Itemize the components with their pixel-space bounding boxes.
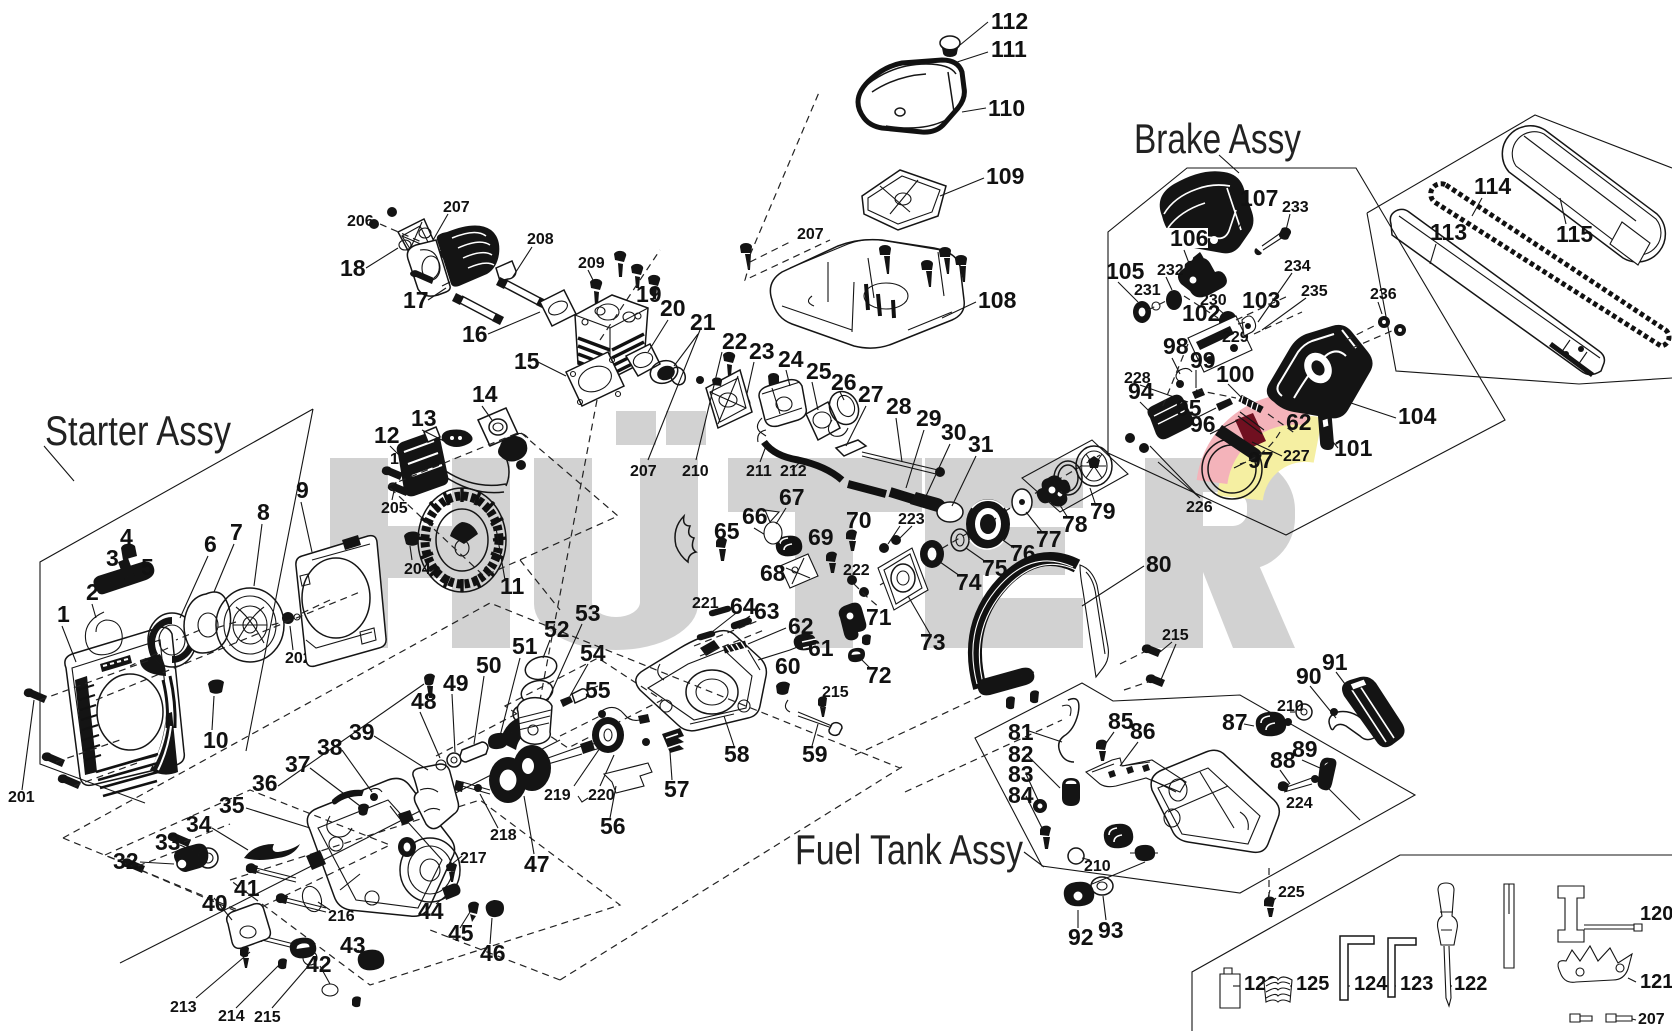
svg-text:60: 60 xyxy=(775,653,801,679)
svg-text:32: 32 xyxy=(113,848,139,874)
svg-text:1: 1 xyxy=(57,601,70,627)
svg-text:44: 44 xyxy=(418,898,444,924)
svg-text:13: 13 xyxy=(411,405,437,431)
svg-text:79: 79 xyxy=(1090,498,1116,524)
svg-text:51: 51 xyxy=(512,633,538,659)
svg-text:120: 120 xyxy=(1640,903,1672,925)
svg-text:14: 14 xyxy=(472,381,498,407)
svg-text:70: 70 xyxy=(846,507,872,533)
svg-text:204: 204 xyxy=(404,561,431,578)
svg-text:24: 24 xyxy=(778,346,804,372)
svg-text:218: 218 xyxy=(490,827,517,844)
svg-text:11: 11 xyxy=(500,573,525,599)
svg-text:23: 23 xyxy=(749,338,775,364)
svg-text:211: 211 xyxy=(746,463,772,480)
svg-text:72: 72 xyxy=(866,662,892,688)
svg-text:67: 67 xyxy=(779,484,805,510)
svg-text:73: 73 xyxy=(920,629,946,655)
svg-text:37: 37 xyxy=(285,751,311,777)
svg-text:100: 100 xyxy=(1216,361,1254,387)
svg-text:107: 107 xyxy=(1240,185,1278,211)
svg-text:208: 208 xyxy=(527,231,554,248)
svg-text:56: 56 xyxy=(600,813,626,839)
svg-text:109: 109 xyxy=(986,163,1024,189)
svg-text:219: 219 xyxy=(544,787,571,804)
svg-text:215: 215 xyxy=(1162,627,1189,644)
svg-text:97: 97 xyxy=(1248,447,1274,473)
svg-text:123: 123 xyxy=(1400,973,1433,995)
svg-text:90: 90 xyxy=(1296,663,1322,689)
svg-text:Brake Assy: Brake Assy xyxy=(1134,115,1301,162)
svg-text:7: 7 xyxy=(230,519,243,545)
svg-text:226: 226 xyxy=(1186,499,1213,516)
svg-text:210: 210 xyxy=(1084,858,1111,875)
svg-text:210: 210 xyxy=(682,463,709,480)
svg-text:6: 6 xyxy=(204,531,217,557)
svg-text:93: 93 xyxy=(1098,917,1124,943)
svg-text:57: 57 xyxy=(664,776,690,802)
svg-text:80: 80 xyxy=(1146,551,1172,577)
svg-text:35: 35 xyxy=(219,792,245,818)
svg-text:207: 207 xyxy=(1638,1011,1665,1028)
svg-text:207: 207 xyxy=(443,199,470,216)
svg-text:28: 28 xyxy=(886,393,912,419)
svg-text:45: 45 xyxy=(448,920,474,946)
svg-text:234: 234 xyxy=(1284,258,1311,275)
svg-text:113: 113 xyxy=(1430,219,1467,245)
svg-text:40: 40 xyxy=(202,890,228,916)
svg-text:227: 227 xyxy=(1283,448,1310,465)
svg-text:39: 39 xyxy=(349,719,375,745)
svg-text:49: 49 xyxy=(443,670,469,696)
svg-text:62: 62 xyxy=(788,613,814,639)
svg-text:92: 92 xyxy=(1068,924,1094,950)
svg-text:224: 224 xyxy=(1286,795,1313,812)
svg-text:55: 55 xyxy=(585,677,611,703)
svg-text:25: 25 xyxy=(806,358,832,384)
svg-text:54: 54 xyxy=(580,640,606,666)
svg-text:3: 3 xyxy=(106,545,119,571)
svg-text:34: 34 xyxy=(186,811,212,837)
svg-text:20: 20 xyxy=(660,295,686,321)
svg-text:69: 69 xyxy=(808,524,834,550)
svg-text:66: 66 xyxy=(742,503,768,529)
svg-text:41: 41 xyxy=(234,875,260,901)
svg-text:33: 33 xyxy=(155,829,181,855)
svg-text:48: 48 xyxy=(411,688,437,714)
svg-text:26: 26 xyxy=(831,369,857,395)
svg-text:53: 53 xyxy=(575,600,601,626)
svg-text:101: 101 xyxy=(1334,435,1373,461)
svg-text:68: 68 xyxy=(760,560,786,586)
svg-text:201: 201 xyxy=(8,789,35,806)
svg-text:207: 207 xyxy=(797,226,824,243)
svg-text:87: 87 xyxy=(1222,709,1248,735)
svg-text:121: 121 xyxy=(1640,971,1672,993)
svg-text:99: 99 xyxy=(1190,347,1216,373)
svg-text:29: 29 xyxy=(916,405,942,431)
svg-text:114: 114 xyxy=(1474,173,1511,199)
svg-text:106: 106 xyxy=(1170,225,1208,251)
svg-text:Fuel Tank Assy: Fuel Tank Assy xyxy=(795,826,1023,873)
svg-text:15: 15 xyxy=(514,348,540,374)
svg-text:112: 112 xyxy=(991,8,1028,34)
svg-text:38: 38 xyxy=(317,734,343,760)
svg-text:71: 71 xyxy=(866,604,892,630)
svg-text:216: 216 xyxy=(328,908,355,925)
svg-text:27: 27 xyxy=(858,381,884,407)
svg-text:59: 59 xyxy=(802,741,828,767)
svg-text:47: 47 xyxy=(524,851,550,877)
svg-text:213: 213 xyxy=(170,999,197,1016)
svg-text:236: 236 xyxy=(1370,286,1397,303)
svg-text:115: 115 xyxy=(1556,221,1593,247)
svg-text:110: 110 xyxy=(988,95,1025,121)
svg-text:31: 31 xyxy=(968,431,994,457)
svg-text:105: 105 xyxy=(1106,258,1145,284)
svg-text:125: 125 xyxy=(1296,973,1329,995)
svg-text:8: 8 xyxy=(257,499,270,525)
svg-text:50: 50 xyxy=(476,652,502,678)
svg-text:215: 215 xyxy=(254,1009,281,1026)
svg-text:215: 215 xyxy=(822,684,849,701)
svg-text:42: 42 xyxy=(306,951,332,977)
svg-text:18: 18 xyxy=(340,255,366,281)
svg-text:86: 86 xyxy=(1130,718,1156,744)
svg-text:220: 220 xyxy=(588,787,615,804)
svg-text:214: 214 xyxy=(218,1008,245,1025)
svg-text:89: 89 xyxy=(1292,736,1318,762)
svg-text:36: 36 xyxy=(252,770,278,796)
svg-text:205: 205 xyxy=(381,500,408,517)
svg-text:4: 4 xyxy=(120,524,133,550)
svg-text:207: 207 xyxy=(630,463,657,480)
svg-text:63: 63 xyxy=(754,598,780,624)
svg-text:9: 9 xyxy=(296,477,309,503)
svg-text:52: 52 xyxy=(544,616,570,642)
svg-text:231: 231 xyxy=(1134,282,1161,299)
svg-text:104: 104 xyxy=(1398,403,1437,429)
svg-text:1: 1 xyxy=(390,451,399,468)
svg-text:212: 212 xyxy=(780,463,807,480)
svg-text:228: 228 xyxy=(1124,370,1151,387)
svg-text:206: 206 xyxy=(347,213,374,230)
svg-text:223: 223 xyxy=(898,511,925,528)
svg-text:17: 17 xyxy=(403,287,429,313)
svg-text:108: 108 xyxy=(978,287,1017,313)
svg-text:122: 122 xyxy=(1454,973,1487,995)
svg-text:65: 65 xyxy=(714,518,740,544)
svg-text:103: 103 xyxy=(1242,287,1280,313)
svg-text:235: 235 xyxy=(1301,283,1328,300)
svg-text:58: 58 xyxy=(724,741,750,767)
svg-text:5: 5 xyxy=(141,554,154,580)
svg-text:Starter Assy: Starter Assy xyxy=(45,407,231,454)
svg-text:111: 111 xyxy=(991,36,1027,62)
svg-text:30: 30 xyxy=(941,419,967,445)
svg-text:221: 221 xyxy=(692,595,719,612)
svg-text:91: 91 xyxy=(1322,649,1348,675)
svg-text:19: 19 xyxy=(636,281,662,307)
svg-text:12: 12 xyxy=(374,422,400,448)
svg-text:217: 217 xyxy=(460,850,487,867)
svg-text:98: 98 xyxy=(1163,333,1189,359)
svg-text:222: 222 xyxy=(843,562,870,579)
svg-text:233: 233 xyxy=(1282,199,1309,216)
svg-text:209: 209 xyxy=(578,255,605,272)
svg-text:232: 232 xyxy=(1157,262,1184,279)
svg-text:21: 21 xyxy=(690,309,716,335)
svg-text:124: 124 xyxy=(1354,973,1388,995)
svg-text:74: 74 xyxy=(956,569,982,595)
svg-text:46: 46 xyxy=(480,940,506,966)
svg-text:22: 22 xyxy=(722,328,748,354)
svg-text:225: 225 xyxy=(1278,884,1305,901)
svg-text:102: 102 xyxy=(1182,300,1220,326)
svg-text:16: 16 xyxy=(462,321,488,347)
